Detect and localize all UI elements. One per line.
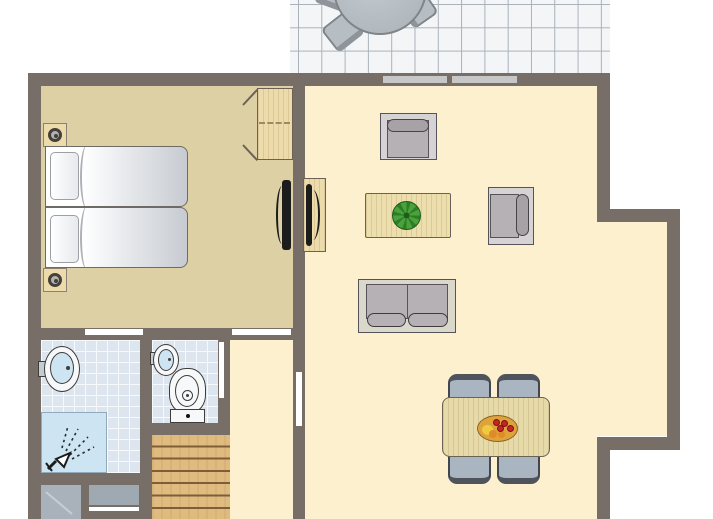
door-bedroom-hallway bbox=[232, 329, 291, 335]
patio-sliding-door bbox=[452, 76, 517, 83]
sofa bbox=[358, 279, 456, 333]
storage-shelf-line bbox=[89, 507, 139, 511]
lamp-dot bbox=[54, 134, 58, 138]
bed-fold-line bbox=[80, 207, 94, 268]
pillow bbox=[50, 215, 79, 263]
armchair bbox=[380, 113, 437, 160]
washbasin bbox=[44, 346, 80, 392]
sofa-back-cushion bbox=[367, 313, 406, 327]
appliance-mark bbox=[45, 491, 72, 514]
wall-right-lower bbox=[597, 437, 610, 519]
fruit-red bbox=[507, 425, 514, 432]
door-toilet bbox=[219, 342, 224, 398]
patio-sliding-door bbox=[383, 76, 447, 83]
living-tv-icon bbox=[306, 184, 312, 246]
washbasin-bowl bbox=[50, 352, 74, 384]
bed-fold-line bbox=[80, 146, 94, 207]
toilet-drain-dot bbox=[186, 394, 189, 397]
toilet-washbasin-bowl bbox=[158, 349, 174, 371]
armchair-cushion bbox=[387, 119, 429, 132]
lamp-icon bbox=[48, 273, 62, 287]
wall-top bbox=[28, 73, 610, 86]
floor-plan bbox=[0, 0, 713, 519]
wall-bay-right bbox=[667, 209, 680, 450]
bedroom-tv-icon bbox=[282, 180, 291, 250]
toilet-bowl bbox=[169, 368, 206, 413]
appliance-icon bbox=[38, 484, 81, 519]
fruit-bowl-icon bbox=[477, 415, 518, 442]
pillow bbox=[50, 152, 79, 200]
staircase bbox=[152, 433, 230, 519]
terrace-floor bbox=[290, 0, 610, 73]
lamp-icon bbox=[48, 128, 62, 142]
wall-right-upper bbox=[597, 73, 610, 222]
shower-head-icon bbox=[44, 421, 100, 473]
bed bbox=[45, 207, 188, 268]
wall-wc-bottom bbox=[140, 423, 230, 435]
appliance-icon bbox=[89, 484, 139, 505]
side-chair-seat bbox=[490, 194, 519, 238]
nightstand bbox=[43, 123, 67, 147]
lamp-dot bbox=[54, 279, 58, 283]
toilet-inner bbox=[175, 375, 199, 407]
plant-icon bbox=[392, 201, 421, 230]
wardrobe-rail-dashed bbox=[259, 122, 290, 124]
wall-center-divider bbox=[293, 86, 305, 519]
drain-dot bbox=[66, 366, 70, 370]
cistern-button bbox=[186, 414, 190, 418]
sofa-back-cushion bbox=[408, 313, 448, 327]
side-chair bbox=[488, 187, 534, 245]
fruit-red bbox=[497, 425, 504, 432]
door-hallway-living bbox=[296, 372, 302, 426]
hallway-floor bbox=[230, 340, 293, 519]
fruit-orange bbox=[489, 430, 497, 438]
fruit-orange bbox=[498, 431, 505, 438]
drain-dot bbox=[168, 358, 171, 361]
side-chair-cushion bbox=[516, 194, 529, 236]
living-room-bay-floor bbox=[597, 222, 667, 436]
wall-left bbox=[28, 73, 41, 519]
nightstand bbox=[43, 268, 67, 292]
wardrobe bbox=[257, 88, 293, 160]
wall-bath-bottom bbox=[28, 473, 152, 485]
sofa-seat-divider bbox=[407, 284, 408, 319]
toilet-cistern bbox=[170, 409, 205, 423]
door-bedroom-bathroom bbox=[85, 329, 143, 335]
shower-tray bbox=[41, 412, 107, 473]
bed bbox=[45, 146, 188, 207]
